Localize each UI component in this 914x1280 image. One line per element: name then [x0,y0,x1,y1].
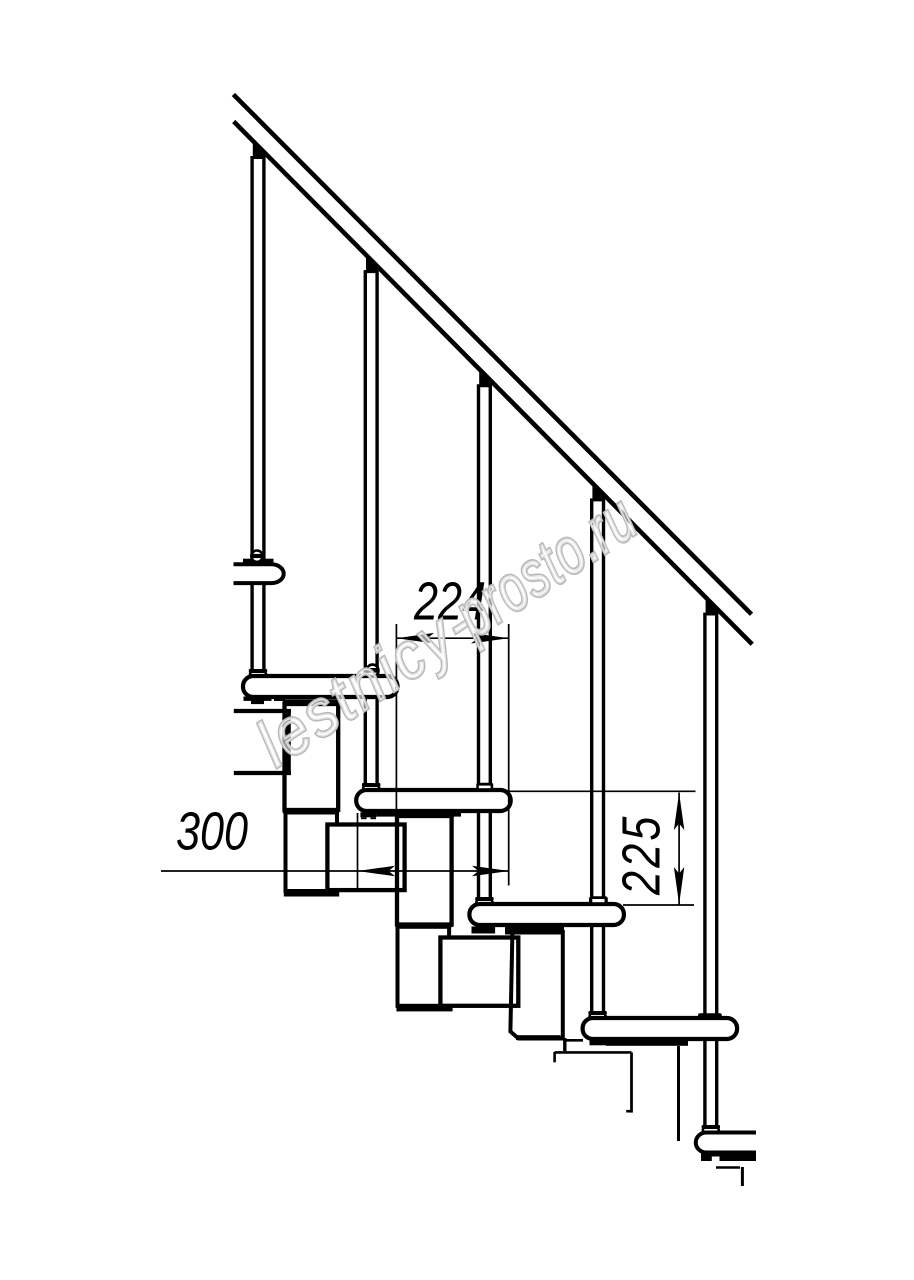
svg-text:300: 300 [176,802,248,862]
svg-text:225: 225 [612,813,672,896]
